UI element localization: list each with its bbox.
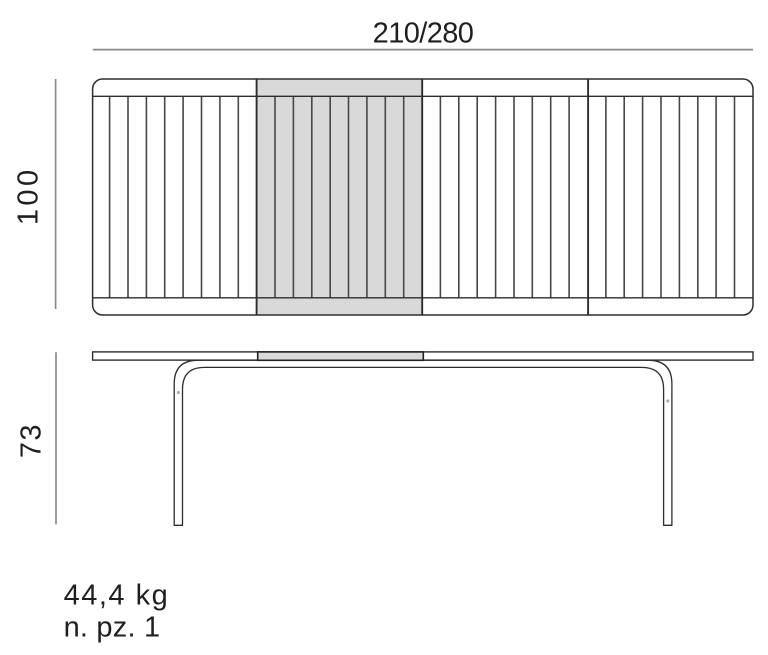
svg-text:210/280: 210/280 bbox=[373, 17, 474, 49]
svg-text:100: 100 bbox=[13, 167, 45, 226]
svg-text:44,4 kg: 44,4 kg bbox=[64, 579, 170, 611]
svg-text:73: 73 bbox=[16, 423, 48, 458]
svg-text:n. pz. 1: n. pz. 1 bbox=[64, 612, 161, 644]
